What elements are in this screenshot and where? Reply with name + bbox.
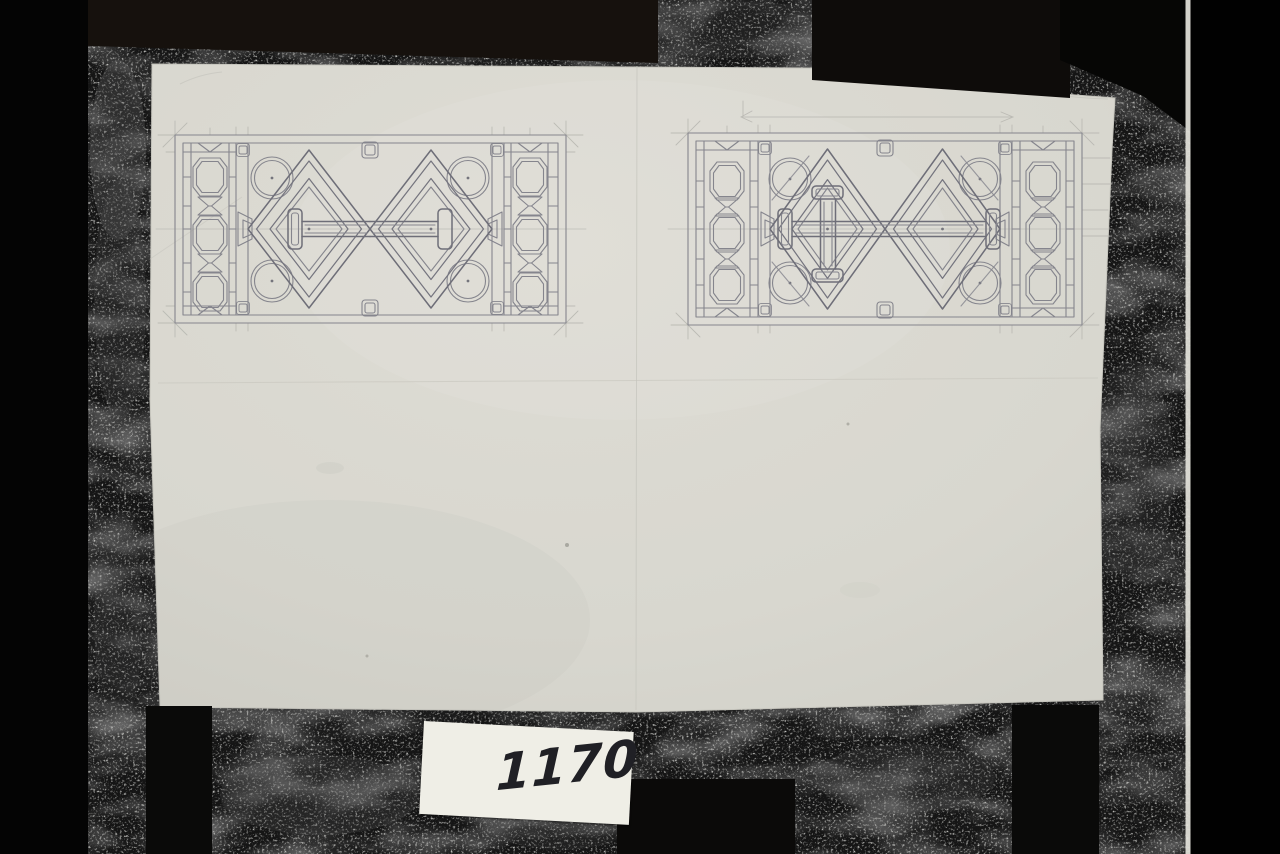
catalog-number: 1170 xyxy=(495,729,639,802)
photo-edge-line xyxy=(1186,0,1191,854)
mounting-bar-bottom-right xyxy=(1012,705,1099,854)
catalog-label: 1170 xyxy=(419,721,634,825)
mounting-bar-bottom-left xyxy=(146,706,212,854)
photo-border-left xyxy=(0,0,88,854)
archival-photo: 1170 xyxy=(0,0,1280,854)
photo-canvas xyxy=(0,0,1280,854)
mounting-bar-bottom-center xyxy=(617,779,795,854)
photo-border-right xyxy=(1191,0,1280,854)
drawing-sheet xyxy=(70,64,1115,740)
